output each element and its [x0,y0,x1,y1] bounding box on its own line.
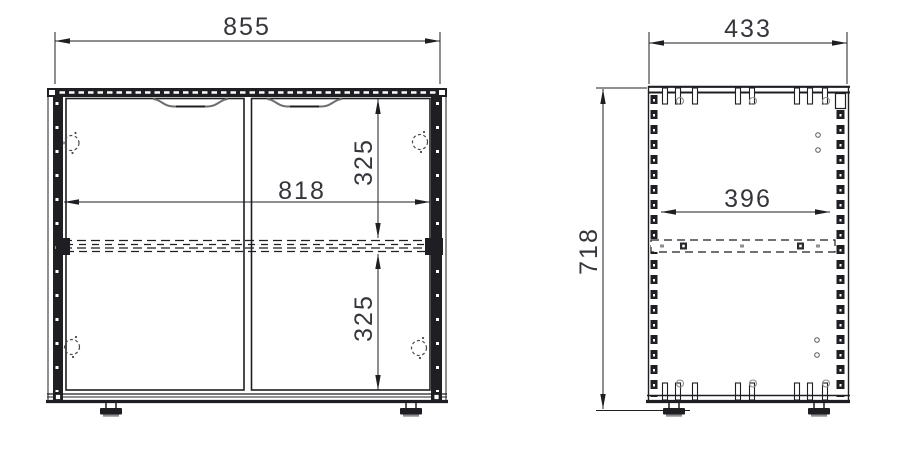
arrowhead-right-icon [832,40,847,45]
top-corner-fitting-left [49,90,56,96]
base-front [46,392,448,402]
front-view: 855 [46,13,448,417]
arrowhead-up-icon [600,89,605,104]
overall-depth-label: 433 [724,15,772,43]
shelf-end-block-right [425,238,443,255]
shelf-cam-right-dot [799,245,802,248]
cabinet-side-body [646,86,850,417]
shelf-cam-left-dot [682,245,685,248]
side-feet [663,403,830,417]
foot-right [400,403,422,417]
shelf-end-block-left [56,238,70,255]
dim-overall-width: 855 [55,13,440,84]
inner-width-label: 818 [278,177,326,205]
dim-inner-depth: 396 [661,185,830,215]
cabinet-front-body [46,88,448,417]
front-feet [100,403,422,417]
arrowhead-right-icon [815,209,830,214]
drawing-canvas: 855 [0,0,903,458]
base-fitting-left [56,395,61,400]
shelf-side [651,240,835,252]
foot-front [663,403,685,417]
dim-overall-depth: 433 [649,15,847,84]
inner-depth-label: 396 [724,185,772,213]
arrowhead-left-icon [55,38,70,43]
base-fitting-right [434,395,439,400]
foot-back [808,403,830,417]
upper-section-label: 325 [350,138,378,186]
technical-drawing: 855 [0,0,903,458]
arrowhead-down-icon [600,394,605,409]
overall-width-label: 855 [223,13,271,41]
arrowhead-right-icon [425,38,440,43]
foot-left [100,403,122,417]
arrowhead-left-icon [649,40,664,45]
overall-height-label: 718 [575,227,603,275]
corner-fitting-top-right [836,94,846,109]
side-view: 433 [575,15,850,417]
arrowhead-left-icon [661,209,676,214]
dowel-pins-bottom [663,380,830,400]
dowel-pins-top [663,88,830,105]
top-corner-fitting-right [439,90,446,96]
side-bottom [646,380,850,402]
lower-section-label: 325 [350,294,378,342]
